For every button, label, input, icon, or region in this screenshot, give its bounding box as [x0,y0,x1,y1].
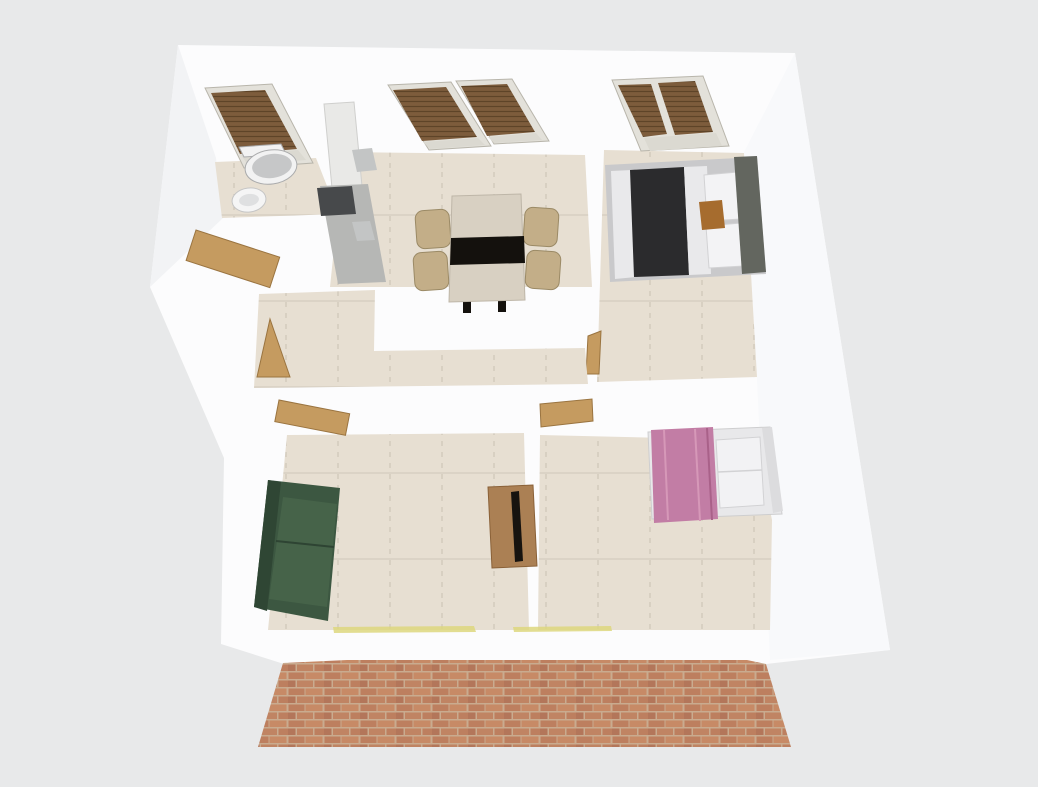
3d-view-canvas[interactable] [0,0,1038,787]
bed-duvet [630,167,689,277]
cooktop-appliance [317,186,356,216]
dining-chair [415,209,452,249]
bed-dark[interactable] [605,156,766,282]
front-sill [333,626,476,633]
bed-tray [699,200,725,230]
bed-pink[interactable] [648,427,783,523]
dining-chair [525,250,562,290]
front-sill [513,626,612,632]
bedroom1-door[interactable] [586,331,601,374]
dining-chair [523,207,560,247]
dining-chair [413,251,450,291]
coffee-table[interactable] [488,485,537,568]
screenshot-stage [0,0,1038,787]
brick-wall [258,660,791,747]
bed-pillow [706,223,744,268]
table-runner [450,236,525,265]
sofa-green[interactable] [254,480,340,621]
